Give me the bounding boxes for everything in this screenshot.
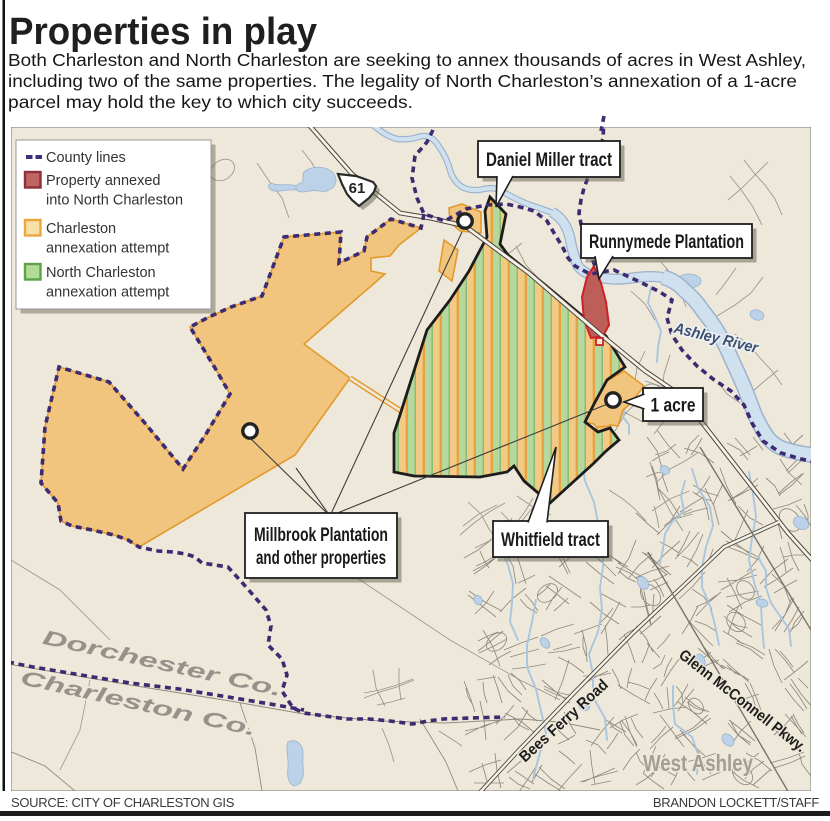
svg-text:Millbrook Plantation: Millbrook Plantation xyxy=(254,525,388,546)
svg-text:West Ashley: West Ashley xyxy=(643,750,753,776)
svg-text:Properties in play: Properties in play xyxy=(9,11,317,53)
svg-text:Whitfield tract: Whitfield tract xyxy=(501,530,601,551)
svg-text:Charleston: Charleston xyxy=(46,221,116,237)
svg-text:Property annexed: Property annexed xyxy=(46,173,160,189)
svg-text:Runnymede Plantation: Runnymede Plantation xyxy=(589,232,744,253)
svg-text:Daniel Miller tract: Daniel Miller tract xyxy=(486,150,613,171)
svg-text:BRANDON LOCKETT/STAFF: BRANDON LOCKETT/STAFF xyxy=(653,795,819,810)
svg-text:and other properties: and other properties xyxy=(256,548,386,569)
svg-text:annexation attempt: annexation attempt xyxy=(46,241,169,257)
svg-text:parcel may hold the key to whi: parcel may hold the key to which city su… xyxy=(8,92,413,112)
svg-text:including two of the same prop: including two of the same properties. Th… xyxy=(8,71,797,91)
svg-text:County lines: County lines xyxy=(46,150,126,166)
svg-text:annexation attempt: annexation attempt xyxy=(46,285,169,301)
svg-text:61: 61 xyxy=(349,180,366,197)
svg-text:1 acre: 1 acre xyxy=(651,395,696,416)
svg-text:Both Charleston and North Char: Both Charleston and North Charleston are… xyxy=(8,50,806,70)
svg-text:into North Charleston: into North Charleston xyxy=(46,193,183,209)
svg-text:SOURCE: CITY OF CHARLESTON GIS: SOURCE: CITY OF CHARLESTON GIS xyxy=(11,795,235,810)
svg-text:North Charleston: North Charleston xyxy=(46,265,156,281)
